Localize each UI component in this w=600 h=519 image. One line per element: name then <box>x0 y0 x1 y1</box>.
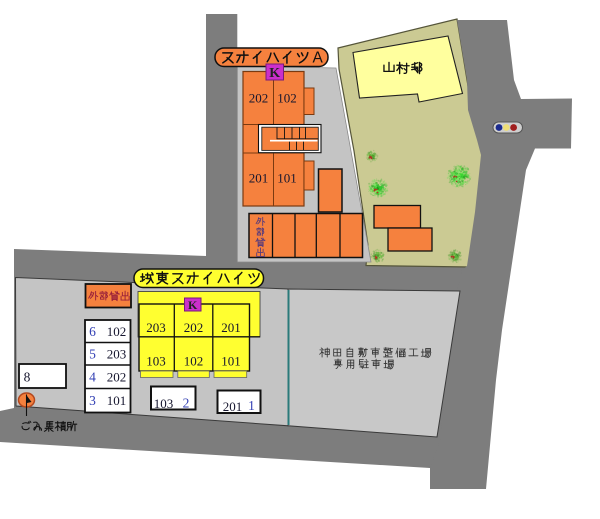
svg-text:3: 3 <box>89 393 96 408</box>
svg-text:203: 203 <box>107 347 127 362</box>
svg-text:101: 101 <box>221 354 241 369</box>
svg-text:101: 101 <box>107 393 127 408</box>
svg-text:201: 201 <box>223 399 243 414</box>
svg-text:K: K <box>269 66 280 81</box>
svg-text:6: 6 <box>89 324 96 339</box>
svg-text:203: 203 <box>146 320 166 335</box>
svg-text:101: 101 <box>277 171 297 186</box>
svg-text:102: 102 <box>277 91 297 106</box>
svg-text:102: 102 <box>184 354 204 369</box>
svg-text:2: 2 <box>183 396 190 411</box>
svg-text:A: A <box>312 49 323 66</box>
svg-text:202: 202 <box>107 370 127 385</box>
svg-text:201: 201 <box>249 171 269 186</box>
svg-text:K: K <box>188 298 198 312</box>
svg-text:1: 1 <box>248 398 255 413</box>
svg-text:202: 202 <box>184 320 204 335</box>
svg-text:202: 202 <box>249 91 269 106</box>
svg-text:8: 8 <box>24 370 31 385</box>
svg-text:103: 103 <box>146 354 166 369</box>
svg-text:103: 103 <box>154 396 174 411</box>
svg-text:5: 5 <box>89 347 96 362</box>
svg-text:4: 4 <box>89 370 96 385</box>
svg-text:201: 201 <box>221 320 241 335</box>
svg-text:102: 102 <box>107 324 127 339</box>
